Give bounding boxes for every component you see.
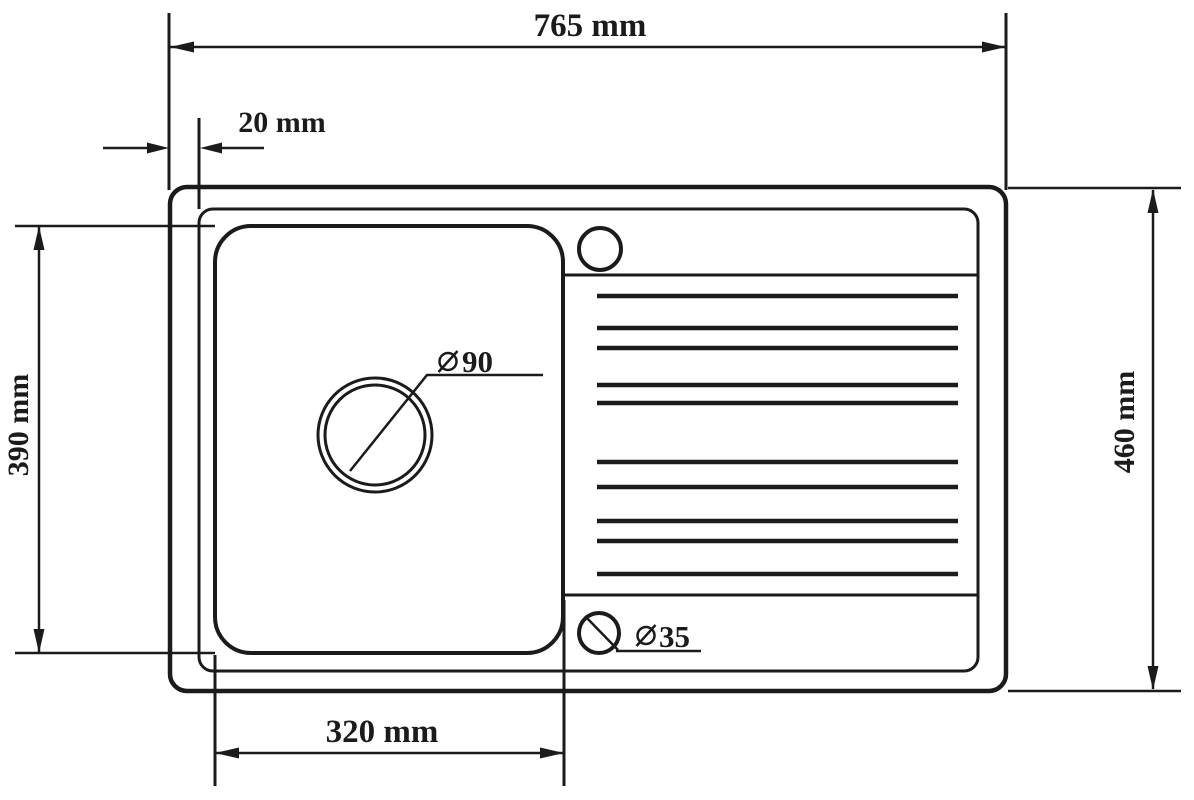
- drain-hole-inner: [325, 385, 425, 485]
- arrowhead-left-icon: [170, 42, 194, 53]
- small-hole-diameter-value: 35: [659, 619, 690, 654]
- dimension-label-overall-width: 765 mm: [534, 8, 647, 44]
- drain-hole-outer: [318, 378, 432, 492]
- arrowhead-left-icon: [200, 143, 222, 154]
- arrowhead-up-icon: [34, 226, 45, 250]
- sink-outline: [170, 187, 1006, 691]
- drain-diameter-value: 90: [462, 344, 493, 379]
- dimension-label-overall-depth: 460 mm: [1108, 371, 1141, 473]
- arrowhead-down-icon: [34, 629, 45, 653]
- small-hole: [579, 613, 619, 653]
- arrowhead-right-icon: [147, 143, 169, 154]
- sink-technical-drawing: 765 mm 20 mm 390 mm 460 mm 320 mm: [0, 0, 1194, 800]
- arrowhead-right-icon: [540, 748, 564, 759]
- callout-small-hole-diameter: 35: [585, 616, 701, 654]
- sink-bowl: [215, 226, 563, 653]
- leader-line: [350, 375, 543, 471]
- drawing-svg: 765 mm 20 mm 390 mm 460 mm 320 mm: [0, 0, 1194, 800]
- sink-rim-edge: [199, 209, 978, 671]
- dimension-rim-inset: 20 mm: [103, 106, 326, 209]
- arrowhead-up-icon: [1148, 189, 1159, 213]
- dimension-label-bowl-depth: 390 mm: [2, 374, 35, 476]
- dimension-label-rim-inset: 20 mm: [238, 106, 325, 139]
- arrowhead-left-icon: [215, 748, 239, 759]
- callout-drain-diameter: 90: [350, 344, 543, 471]
- diameter-icon: [637, 625, 656, 646]
- dimension-overall-depth: 460 mm: [1008, 188, 1181, 691]
- dimension-overall-width: 765 mm: [169, 8, 1006, 190]
- tap-hole-top: [579, 228, 621, 270]
- diameter-icon: [439, 351, 458, 372]
- dimension-bowl-depth: 390 mm: [2, 226, 215, 653]
- dimension-label-bowl-width: 320 mm: [326, 714, 439, 750]
- arrowhead-right-icon: [982, 42, 1006, 53]
- drainboard-ridges: [597, 296, 958, 574]
- arrowhead-down-icon: [1148, 666, 1159, 690]
